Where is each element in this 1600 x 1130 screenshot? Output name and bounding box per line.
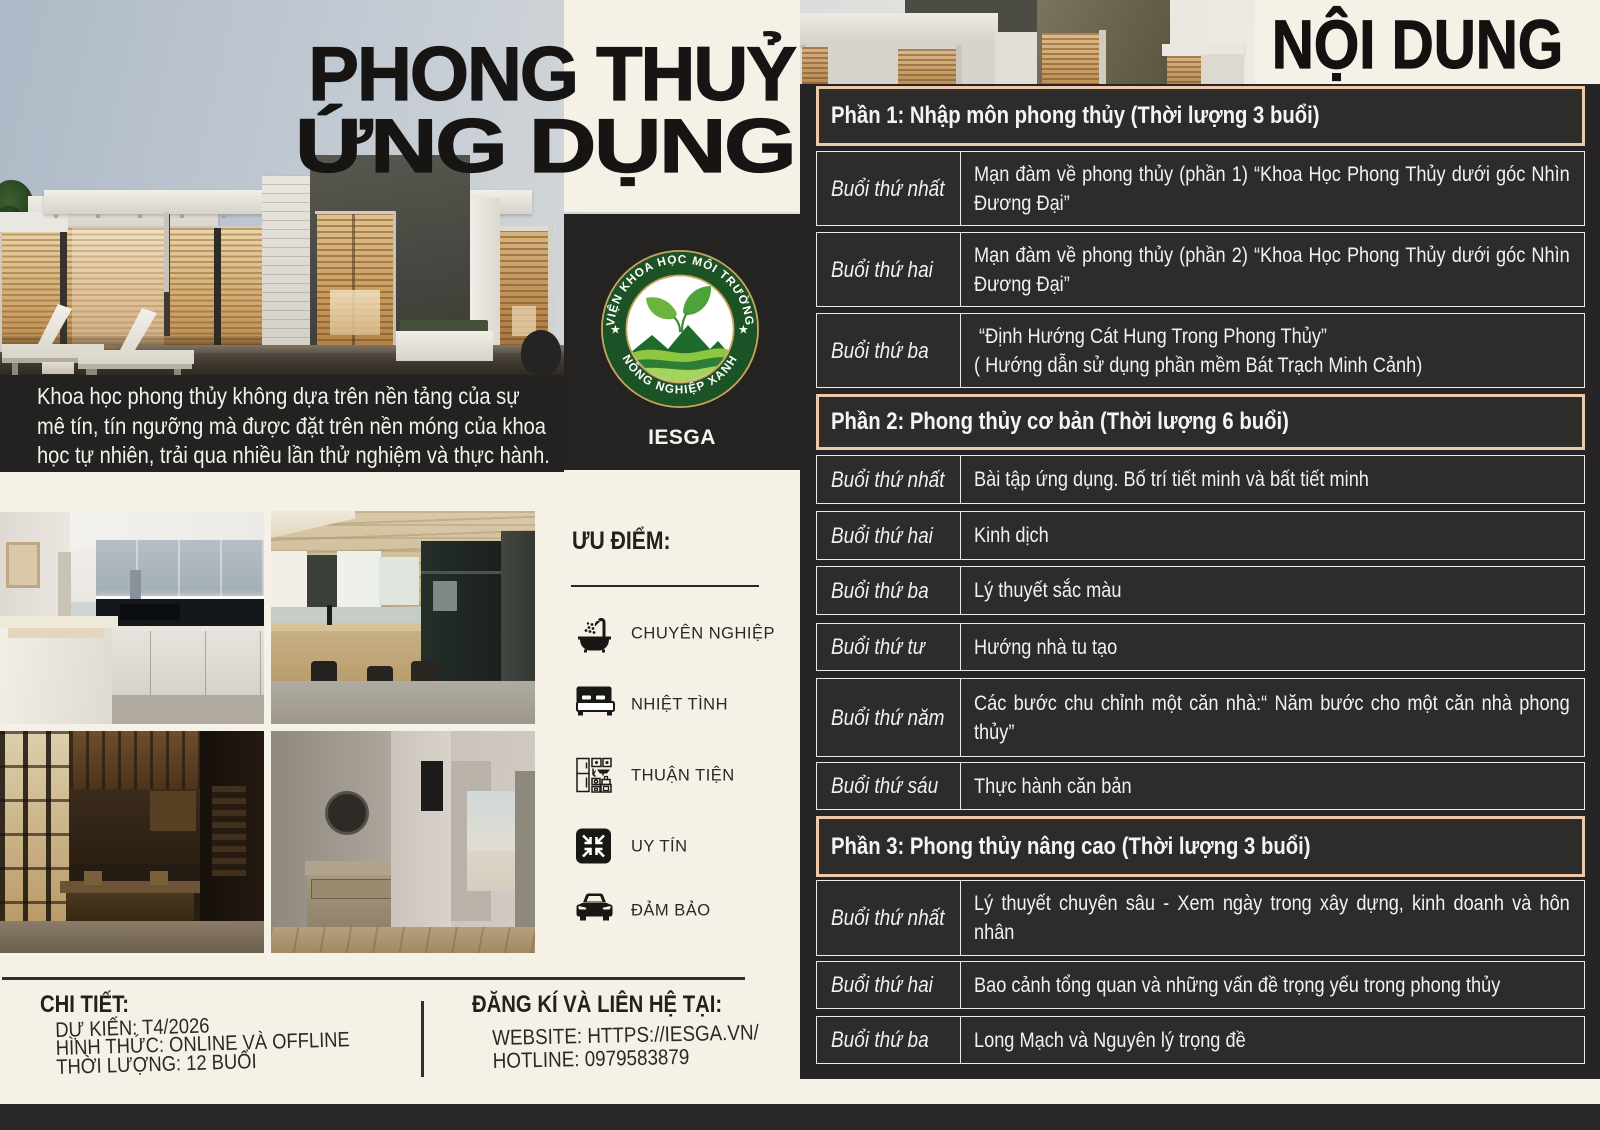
svg-text:★: ★ <box>610 323 621 337</box>
svg-text:★: ★ <box>738 323 749 337</box>
